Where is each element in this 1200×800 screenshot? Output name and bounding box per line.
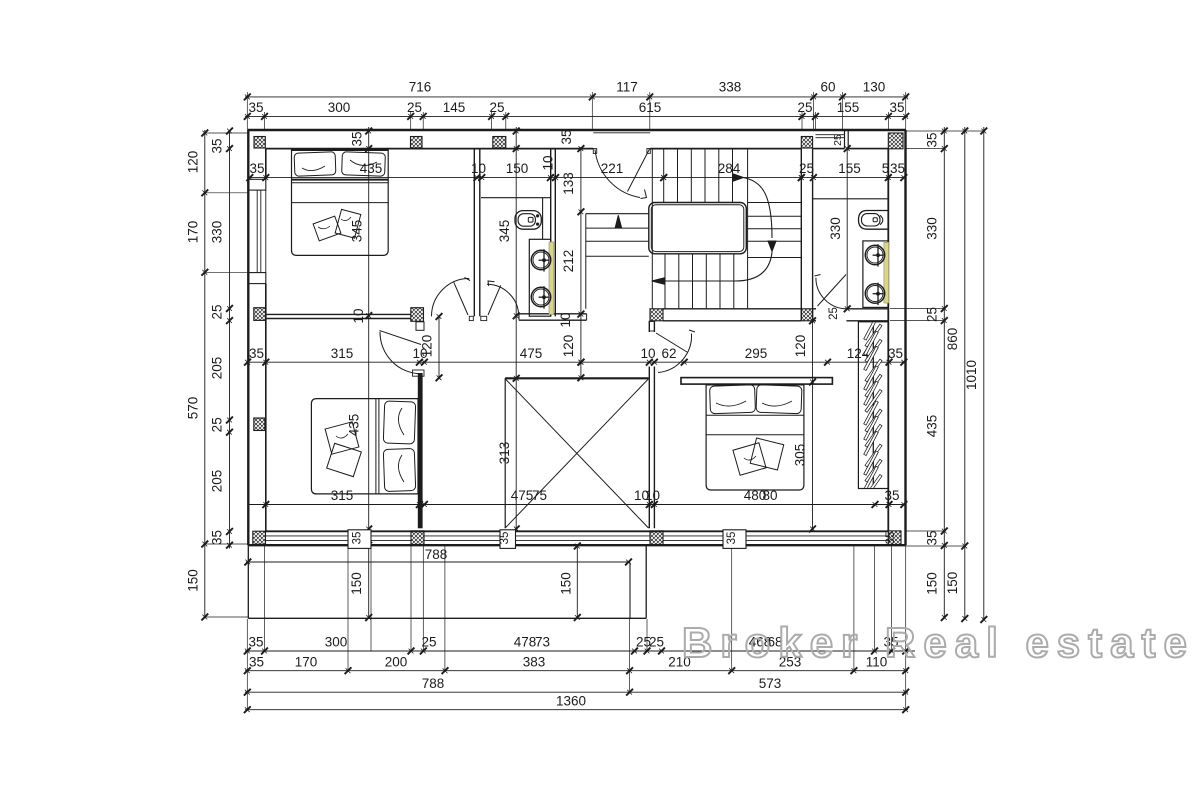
svg-text:25: 25 (832, 134, 844, 146)
svg-text:478: 478 (514, 635, 537, 650)
svg-text:383: 383 (523, 654, 546, 669)
svg-text:345: 345 (350, 220, 365, 243)
svg-text:170: 170 (295, 654, 318, 669)
svg-text:305: 305 (793, 444, 808, 467)
svg-text:35: 35 (499, 532, 511, 545)
svg-text:133: 133 (561, 172, 576, 195)
svg-text:35: 35 (559, 129, 574, 144)
svg-text:35: 35 (248, 635, 263, 650)
svg-text:150: 150 (186, 569, 201, 592)
svg-text:150: 150 (559, 572, 574, 595)
svg-text:205: 205 (210, 470, 225, 493)
svg-text:10: 10 (351, 308, 366, 323)
svg-text:35: 35 (726, 532, 738, 545)
svg-text:117: 117 (616, 80, 638, 95)
svg-text:205: 205 (210, 357, 225, 380)
svg-text:35: 35 (884, 488, 899, 503)
svg-text:573: 573 (759, 676, 782, 691)
svg-text:25: 25 (828, 307, 840, 320)
svg-text:155: 155 (837, 100, 860, 115)
svg-text:35: 35 (248, 100, 263, 115)
svg-text:130: 130 (863, 80, 886, 95)
svg-text:25: 25 (407, 100, 422, 115)
svg-text:716: 716 (409, 80, 432, 95)
svg-text:860: 860 (945, 328, 960, 351)
svg-text:150: 150 (945, 572, 960, 595)
svg-text:475: 475 (511, 488, 534, 503)
svg-text:25: 25 (925, 307, 940, 322)
svg-text:150: 150 (925, 572, 940, 595)
svg-text:25: 25 (210, 417, 225, 432)
svg-text:120: 120 (793, 335, 808, 358)
svg-text:35: 35 (925, 530, 940, 545)
svg-text:10: 10 (640, 346, 655, 361)
svg-text:284: 284 (718, 161, 741, 176)
svg-text:120: 120 (186, 151, 201, 174)
svg-text:35: 35 (890, 161, 905, 176)
svg-text:25: 25 (421, 635, 436, 650)
svg-text:25: 25 (797, 100, 812, 115)
svg-text:35: 35 (352, 532, 364, 545)
svg-text:35: 35 (925, 132, 940, 147)
svg-text:330: 330 (925, 217, 940, 240)
svg-text:788: 788 (425, 547, 448, 562)
svg-text:200: 200 (385, 654, 408, 669)
svg-text:35: 35 (249, 346, 264, 361)
svg-text:62: 62 (661, 346, 676, 361)
svg-text:155: 155 (838, 161, 861, 176)
svg-text:313: 313 (497, 442, 512, 465)
svg-text:35: 35 (210, 138, 225, 153)
svg-text:35: 35 (210, 530, 225, 545)
svg-text:60: 60 (820, 80, 835, 95)
svg-text:170: 170 (186, 221, 201, 244)
svg-text:570: 570 (186, 397, 201, 420)
svg-text:212: 212 (561, 250, 576, 273)
svg-text:345: 345 (497, 220, 512, 243)
svg-text:75: 75 (532, 488, 547, 503)
svg-text:35: 35 (889, 100, 904, 115)
svg-text:10: 10 (471, 161, 486, 176)
svg-text:1010: 1010 (964, 360, 979, 390)
svg-text:475: 475 (520, 346, 543, 361)
svg-text:35: 35 (249, 161, 264, 176)
svg-text:120: 120 (561, 335, 576, 358)
svg-text:Broker Real estate: Broker Real estate (682, 619, 1195, 666)
svg-text:300: 300 (328, 100, 351, 115)
svg-text:120: 120 (420, 335, 435, 358)
svg-text:35: 35 (249, 654, 264, 669)
svg-text:10: 10 (645, 488, 660, 503)
svg-text:35: 35 (888, 346, 903, 361)
svg-text:150: 150 (349, 572, 364, 595)
svg-text:25: 25 (649, 635, 664, 650)
svg-text:150: 150 (506, 161, 529, 176)
svg-text:788: 788 (422, 676, 445, 691)
svg-text:1360: 1360 (556, 693, 586, 708)
svg-text:435: 435 (347, 414, 362, 437)
svg-text:330: 330 (210, 221, 225, 244)
svg-text:330: 330 (828, 217, 843, 240)
svg-text:295: 295 (745, 346, 768, 361)
svg-text:145: 145 (443, 100, 466, 115)
svg-text:25: 25 (210, 304, 225, 319)
svg-text:35: 35 (350, 131, 365, 146)
svg-text:315: 315 (331, 488, 354, 503)
svg-text:315: 315 (331, 346, 354, 361)
svg-text:73: 73 (535, 635, 550, 650)
svg-text:10: 10 (541, 155, 556, 170)
svg-text:338: 338 (719, 80, 742, 95)
svg-text:435: 435 (360, 161, 383, 176)
svg-text:435: 435 (925, 415, 940, 438)
svg-text:300: 300 (325, 635, 348, 650)
